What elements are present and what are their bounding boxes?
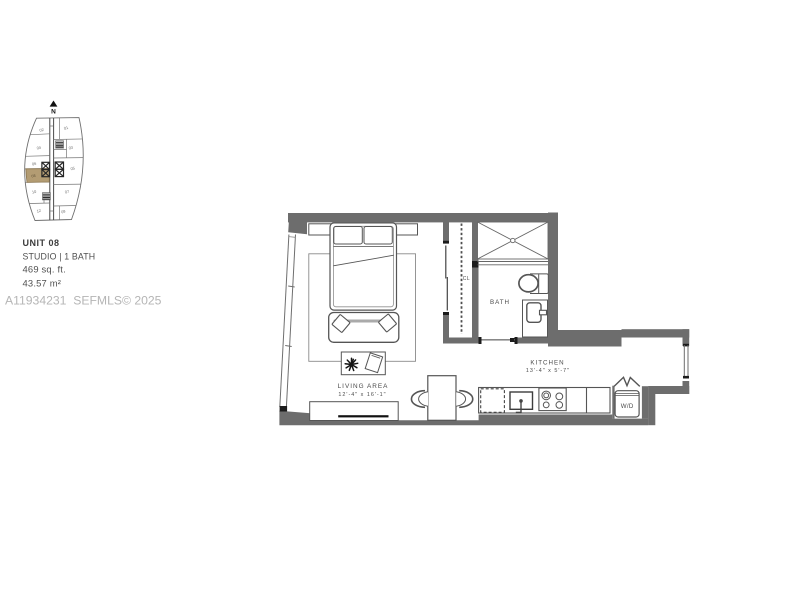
svg-text:469 sq. ft.: 469 sq. ft.: [23, 264, 66, 275]
svg-text:43.57 m²: 43.57 m²: [23, 278, 62, 289]
svg-text:STUDIO | 1 BATH: STUDIO | 1 BATH: [23, 252, 96, 262]
svg-text:A11934231 SEFMLS© 2025: A11934231 SEFMLS© 2025: [5, 294, 162, 308]
svg-text:UNIT 08: UNIT 08: [23, 238, 60, 248]
svg-text:N: N: [51, 109, 56, 116]
svg-text:LIVING AREA: LIVING AREA: [338, 383, 389, 390]
svg-text:KITCHEN: KITCHEN: [530, 360, 564, 367]
svg-text:BATH: BATH: [490, 299, 510, 306]
svg-text:CL: CL: [463, 276, 471, 282]
svg-text:08: 08: [31, 174, 36, 179]
svg-text:13'-4" x 5'-7": 13'-4" x 5'-7": [526, 368, 570, 374]
svg-text:W/D: W/D: [621, 403, 634, 410]
svg-text:12'-4" x 16'-1": 12'-4" x 16'-1": [338, 392, 386, 398]
